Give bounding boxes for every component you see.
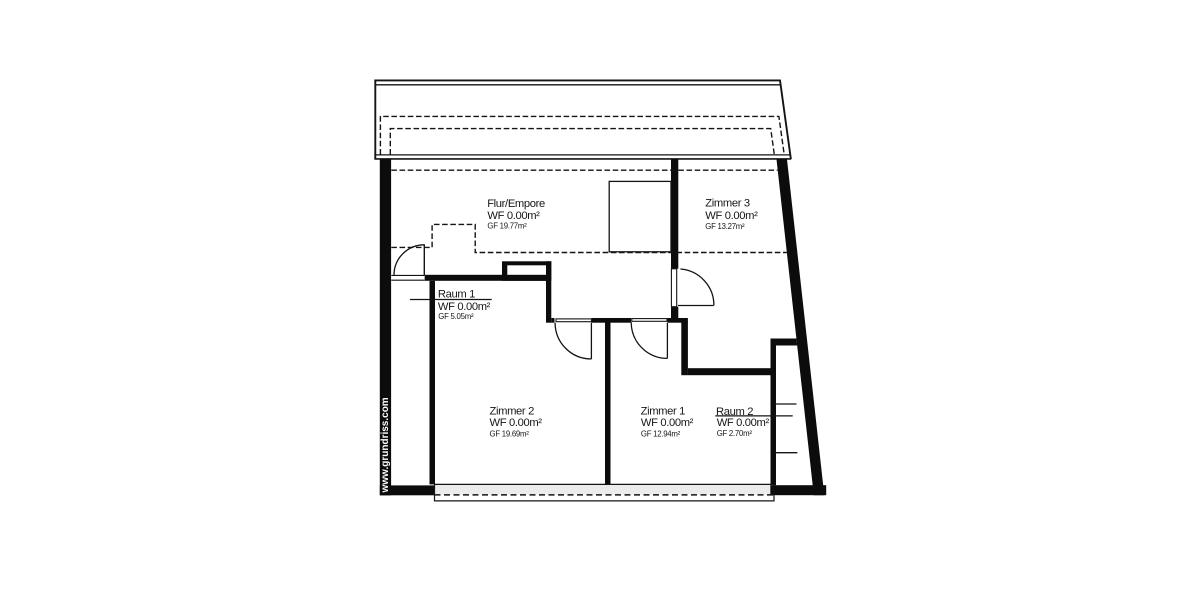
svg-text:Zimmer 3: Zimmer 3 — [705, 197, 750, 209]
svg-text:GF 5.05m²: GF 5.05m² — [438, 312, 474, 321]
svg-text:Zimmer 2: Zimmer 2 — [490, 405, 535, 417]
svg-text:GF 19.69m²: GF 19.69m² — [490, 429, 530, 438]
svg-text:WF 0.00m²: WF 0.00m² — [717, 417, 770, 429]
svg-text:Raum 1: Raum 1 — [438, 289, 475, 301]
svg-text:Flur/Empore: Flur/Empore — [487, 198, 545, 210]
svg-text:GF 2.70m²: GF 2.70m² — [717, 429, 753, 438]
svg-text:WF 0.00m²: WF 0.00m² — [487, 210, 540, 222]
svg-text:Zimmer 1: Zimmer 1 — [641, 405, 686, 417]
svg-text:GF 13.27m²: GF 13.27m² — [705, 222, 745, 231]
svg-text:GF 12.94m²: GF 12.94m² — [641, 429, 681, 438]
svg-text:Raum 2: Raum 2 — [716, 406, 753, 418]
svg-text:www.grundriss.com: www.grundriss.com — [380, 397, 391, 493]
svg-text:WF 0.00m²: WF 0.00m² — [705, 210, 758, 222]
svg-text:WF 0.00m²: WF 0.00m² — [641, 417, 694, 429]
svg-text:GF 19.77m²: GF 19.77m² — [487, 222, 527, 231]
svg-text:WF 0.00m²: WF 0.00m² — [490, 417, 543, 429]
